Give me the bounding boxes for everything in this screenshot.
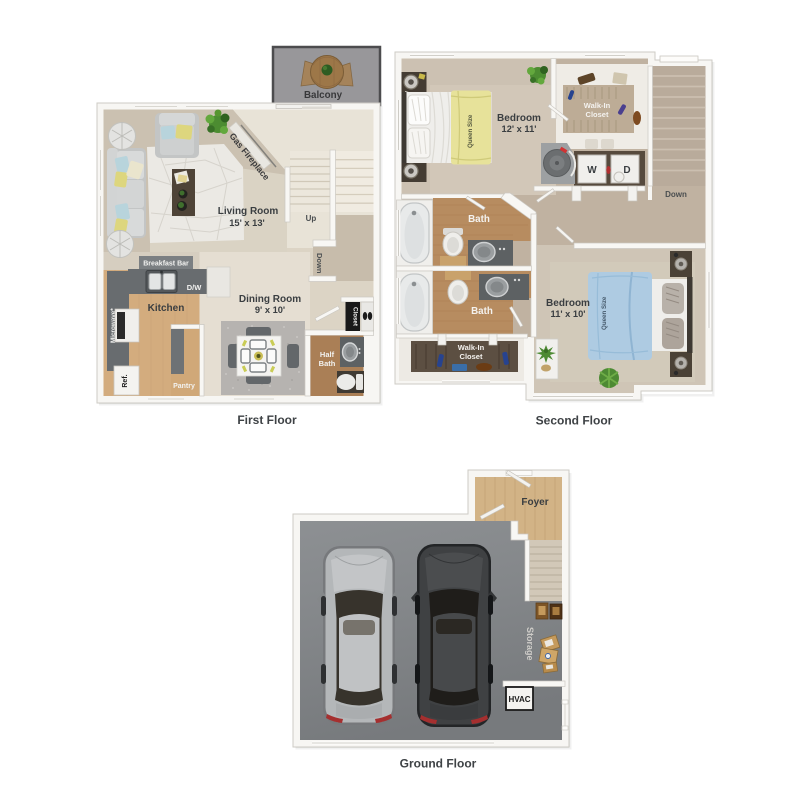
svg-text:Closet: Closet [586,110,609,119]
svg-text:Living Room: Living Room [218,206,279,217]
svg-text:Breakfast Bar: Breakfast Bar [143,261,189,268]
svg-text:W: W [587,165,597,176]
svg-text:Ground Floor: Ground Floor [400,757,477,771]
svg-text:Foyer: Foyer [521,497,548,508]
svg-text:Closet: Closet [352,307,359,326]
svg-text:11' x 10': 11' x 10' [551,309,586,319]
svg-text:15' x 13': 15' x 13' [229,218,264,228]
svg-text:HVAC: HVAC [508,695,530,704]
svg-text:Walk-In: Walk-In [458,343,485,352]
svg-text:Up: Up [306,214,317,223]
svg-text:Bath: Bath [468,214,490,225]
svg-text:Walk-In: Walk-In [584,101,611,110]
svg-text:Dining Room: Dining Room [239,294,301,305]
svg-text:Bedroom: Bedroom [497,113,541,124]
svg-text:Half: Half [320,350,335,359]
svg-text:Down: Down [315,253,324,274]
svg-text:Bath: Bath [471,306,493,317]
svg-text:Down: Down [665,190,687,199]
svg-text:Closet: Closet [460,352,483,361]
svg-text:Ref.: Ref. [122,374,129,387]
svg-text:Bath: Bath [319,359,336,368]
svg-text:Bedroom: Bedroom [546,298,590,309]
svg-text:Storage: Storage [525,627,535,661]
svg-text:Balcony: Balcony [304,90,343,101]
svg-text:D/W: D/W [187,283,203,292]
svg-text:Queen Size: Queen Size [467,114,474,148]
svg-text:D: D [623,165,630,176]
svg-text:Pantry: Pantry [173,383,195,390]
svg-text:9' x 10': 9' x 10' [255,305,285,315]
svg-text:Queen Size: Queen Size [601,296,608,330]
svg-text:12' x 11': 12' x 11' [502,124,537,134]
svg-text:Second Floor: Second Floor [536,414,613,428]
svg-text:First Floor: First Floor [237,413,297,427]
svg-text:Kitchen: Kitchen [148,303,185,314]
